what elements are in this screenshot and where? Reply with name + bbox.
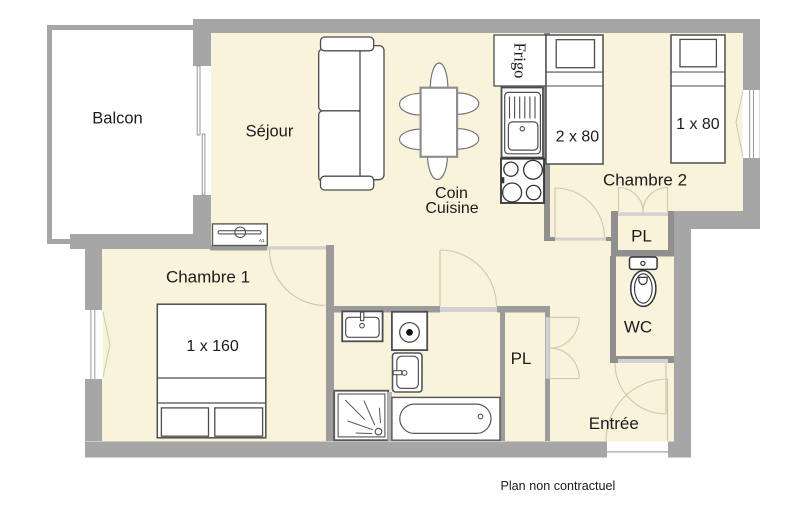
svg-text:Chambre 1: Chambre 1: [166, 268, 250, 287]
svg-text:Entrée: Entrée: [589, 414, 639, 433]
svg-text:Séjour: Séjour: [246, 123, 294, 141]
svg-text:A1: A1: [259, 238, 265, 243]
svg-text:Balcon: Balcon: [92, 110, 142, 128]
svg-text:1 x 80: 1 x 80: [676, 116, 720, 133]
svg-text:Chambre 2: Chambre 2: [603, 171, 687, 190]
svg-text:2 x 80: 2 x 80: [556, 129, 600, 146]
svg-text:PL: PL: [511, 349, 532, 368]
svg-text:Frigo: Frigo: [511, 43, 530, 79]
svg-text:Plan non contractuel: Plan non contractuel: [500, 479, 615, 493]
svg-text:PL: PL: [631, 227, 652, 246]
svg-text:1 x 160: 1 x 160: [186, 338, 239, 355]
svg-text:Cuisine: Cuisine: [425, 200, 478, 217]
svg-text:WC: WC: [624, 318, 652, 337]
